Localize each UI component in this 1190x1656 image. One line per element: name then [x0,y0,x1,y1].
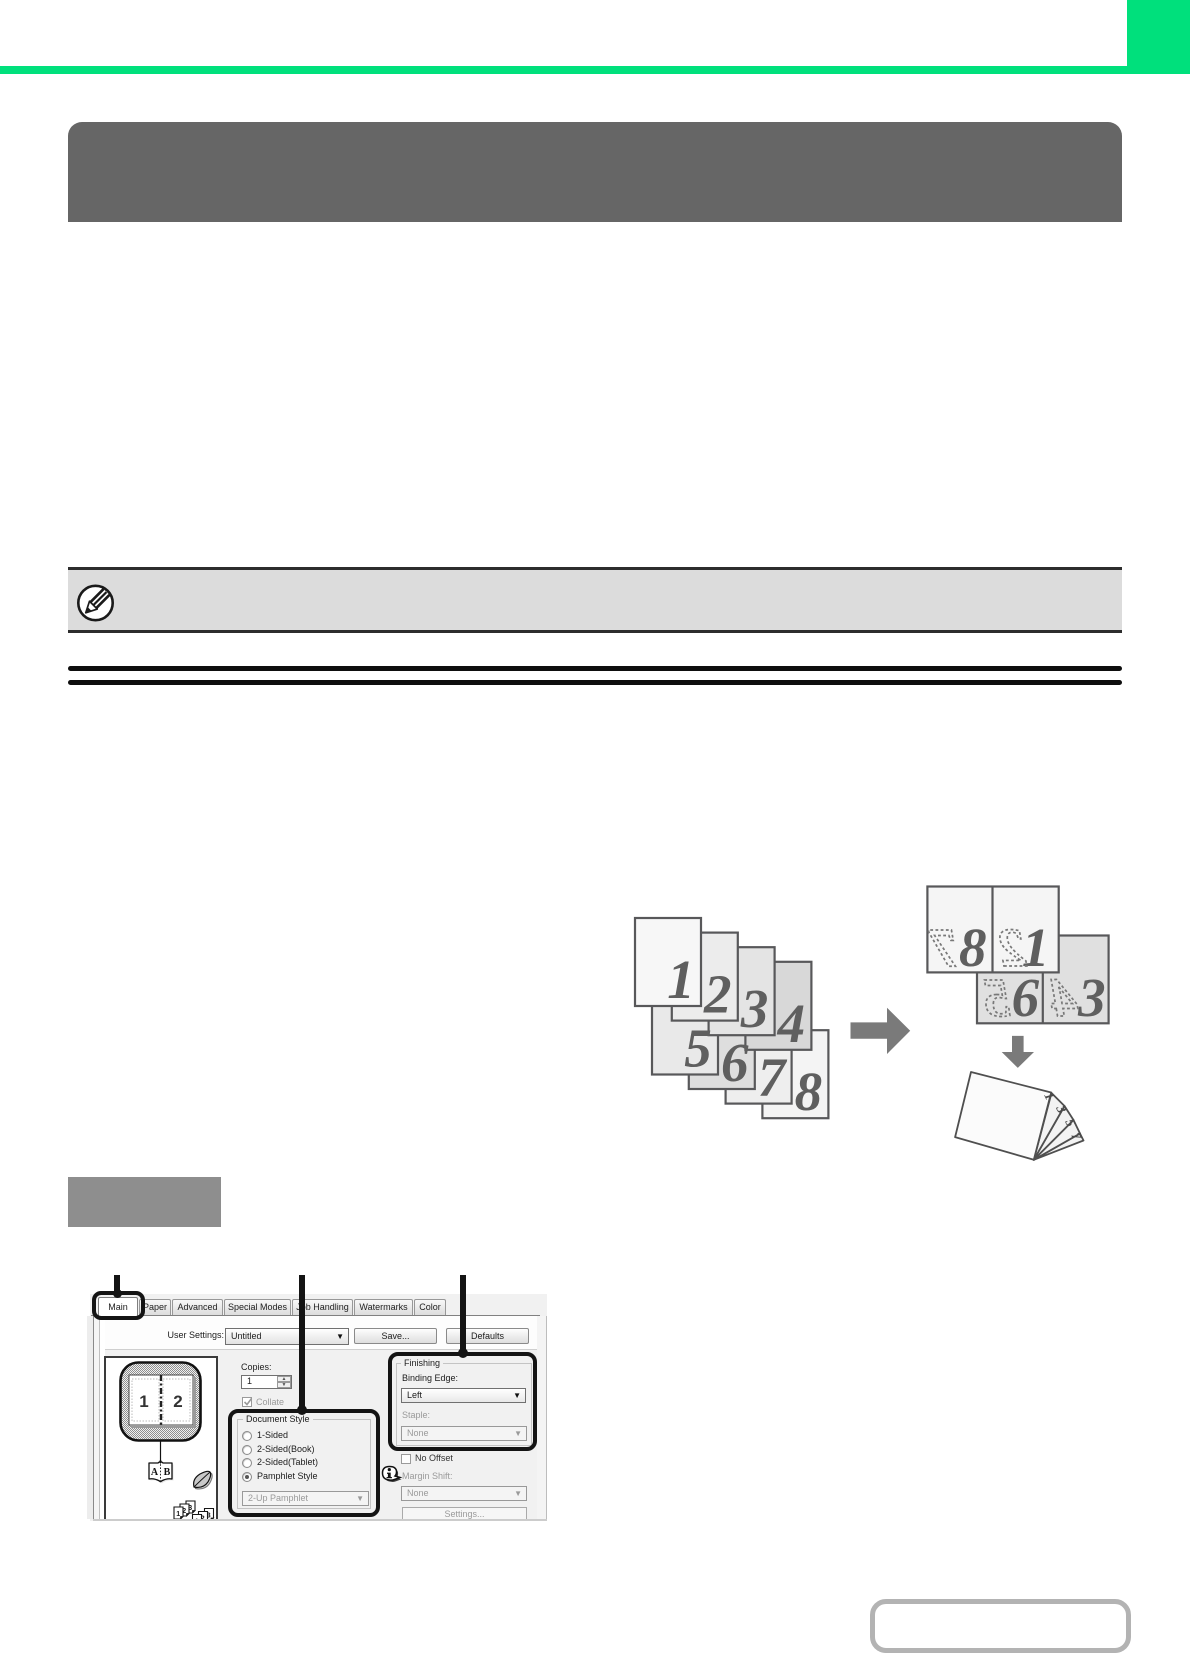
svg-text:2: 2 [182,1508,186,1515]
svg-text:A: A [151,1467,159,1478]
svg-text:3: 3 [188,1505,192,1512]
svg-text:B: B [164,1467,171,1478]
svg-text:1: 1 [176,1511,180,1518]
